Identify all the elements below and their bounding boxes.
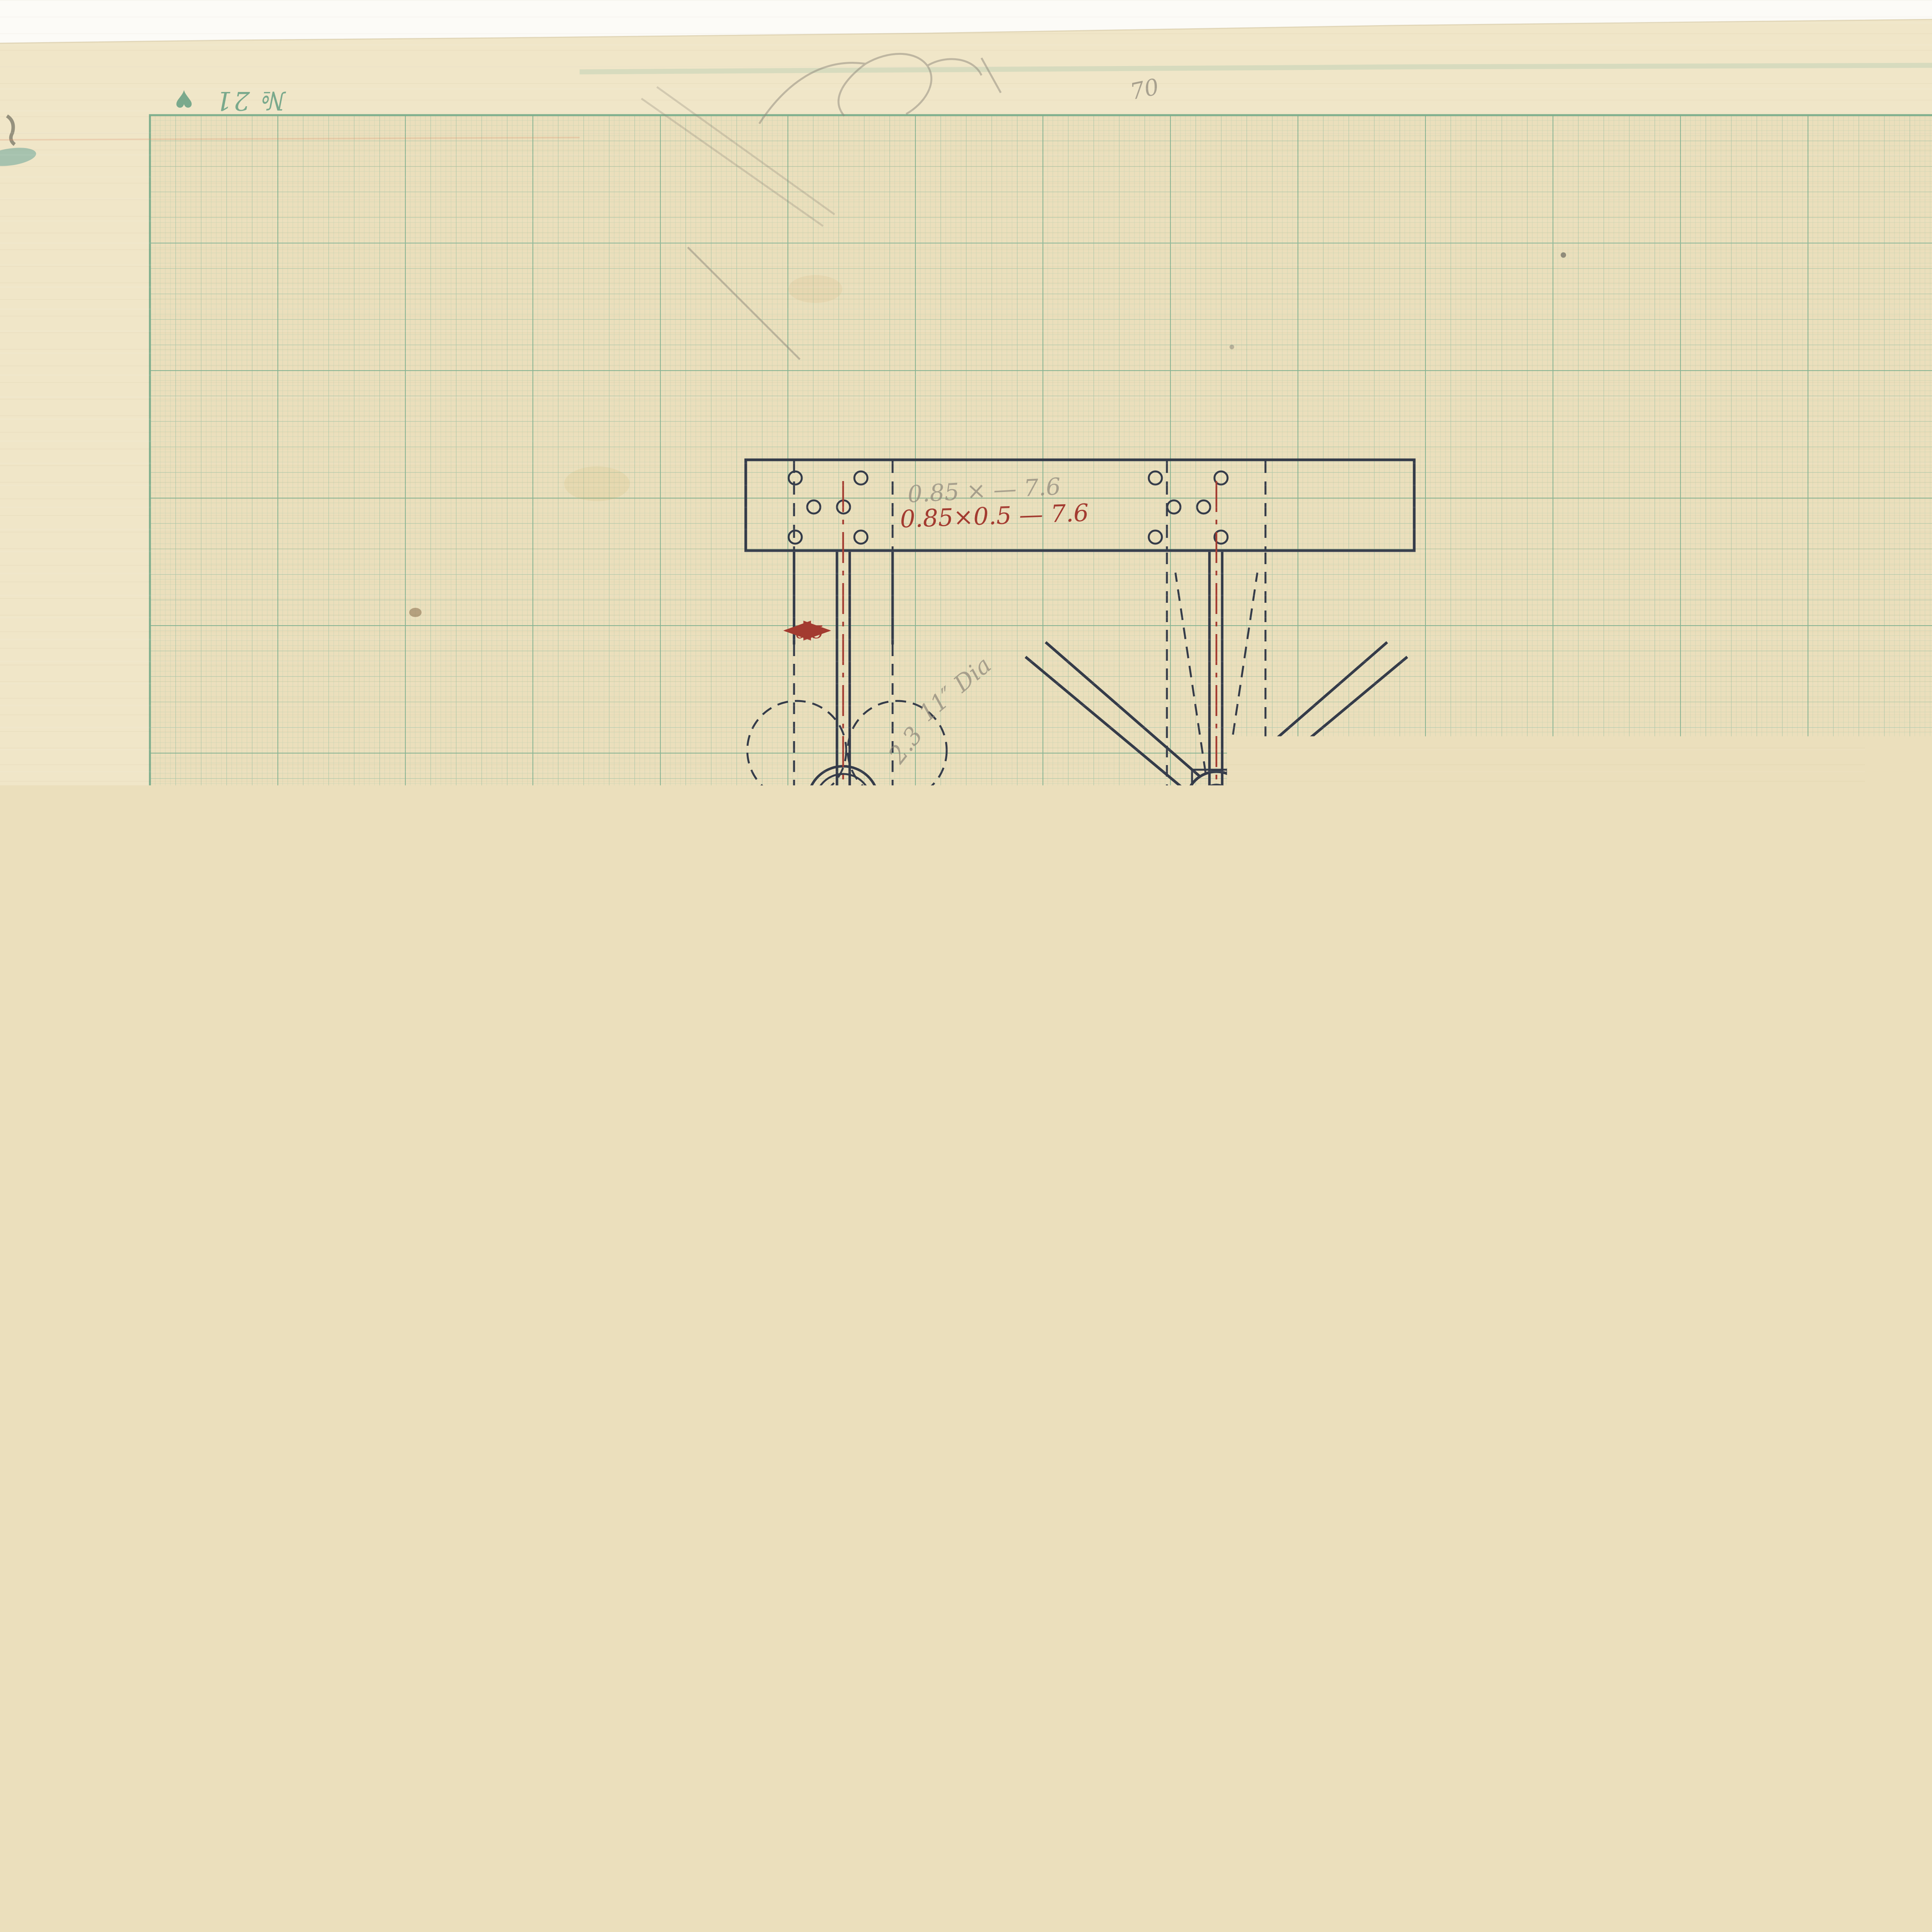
- dim-post-1: 0.5×0.35 — 8.3: [770, 923, 793, 1082]
- dim-side-13: 1.3: [673, 1693, 698, 1727]
- dim-post-width: 0.5: [795, 622, 823, 643]
- scanned-drawing-sheet: № 21 ♥ N. HAIBARA. N. HAIBARA. № 21 ♥ 55…: [0, 0, 1932, 1932]
- dim-post-4: 0.5×0.35 — 8.3: [1237, 939, 1260, 1097]
- plate-number-top: № 21: [214, 86, 286, 116]
- graph-grid: [0, 0, 1932, 1932]
- dim-post-2: 0.5×0.35 — 8.3: [858, 939, 881, 1097]
- stain-speck: [409, 608, 422, 617]
- dim-side-12: 1.2: [656, 1542, 681, 1577]
- dim-span-side: 4′— 9″: [1038, 1875, 1126, 1912]
- dim-post-3: 0.5×0.35 — 8.3: [1178, 923, 1201, 1082]
- dim-depth: 5.′3: [1901, 1775, 1932, 1824]
- dim-side-05: 0.5: [719, 1574, 741, 1604]
- heart-stamp-top-icon: ♥: [175, 83, 194, 117]
